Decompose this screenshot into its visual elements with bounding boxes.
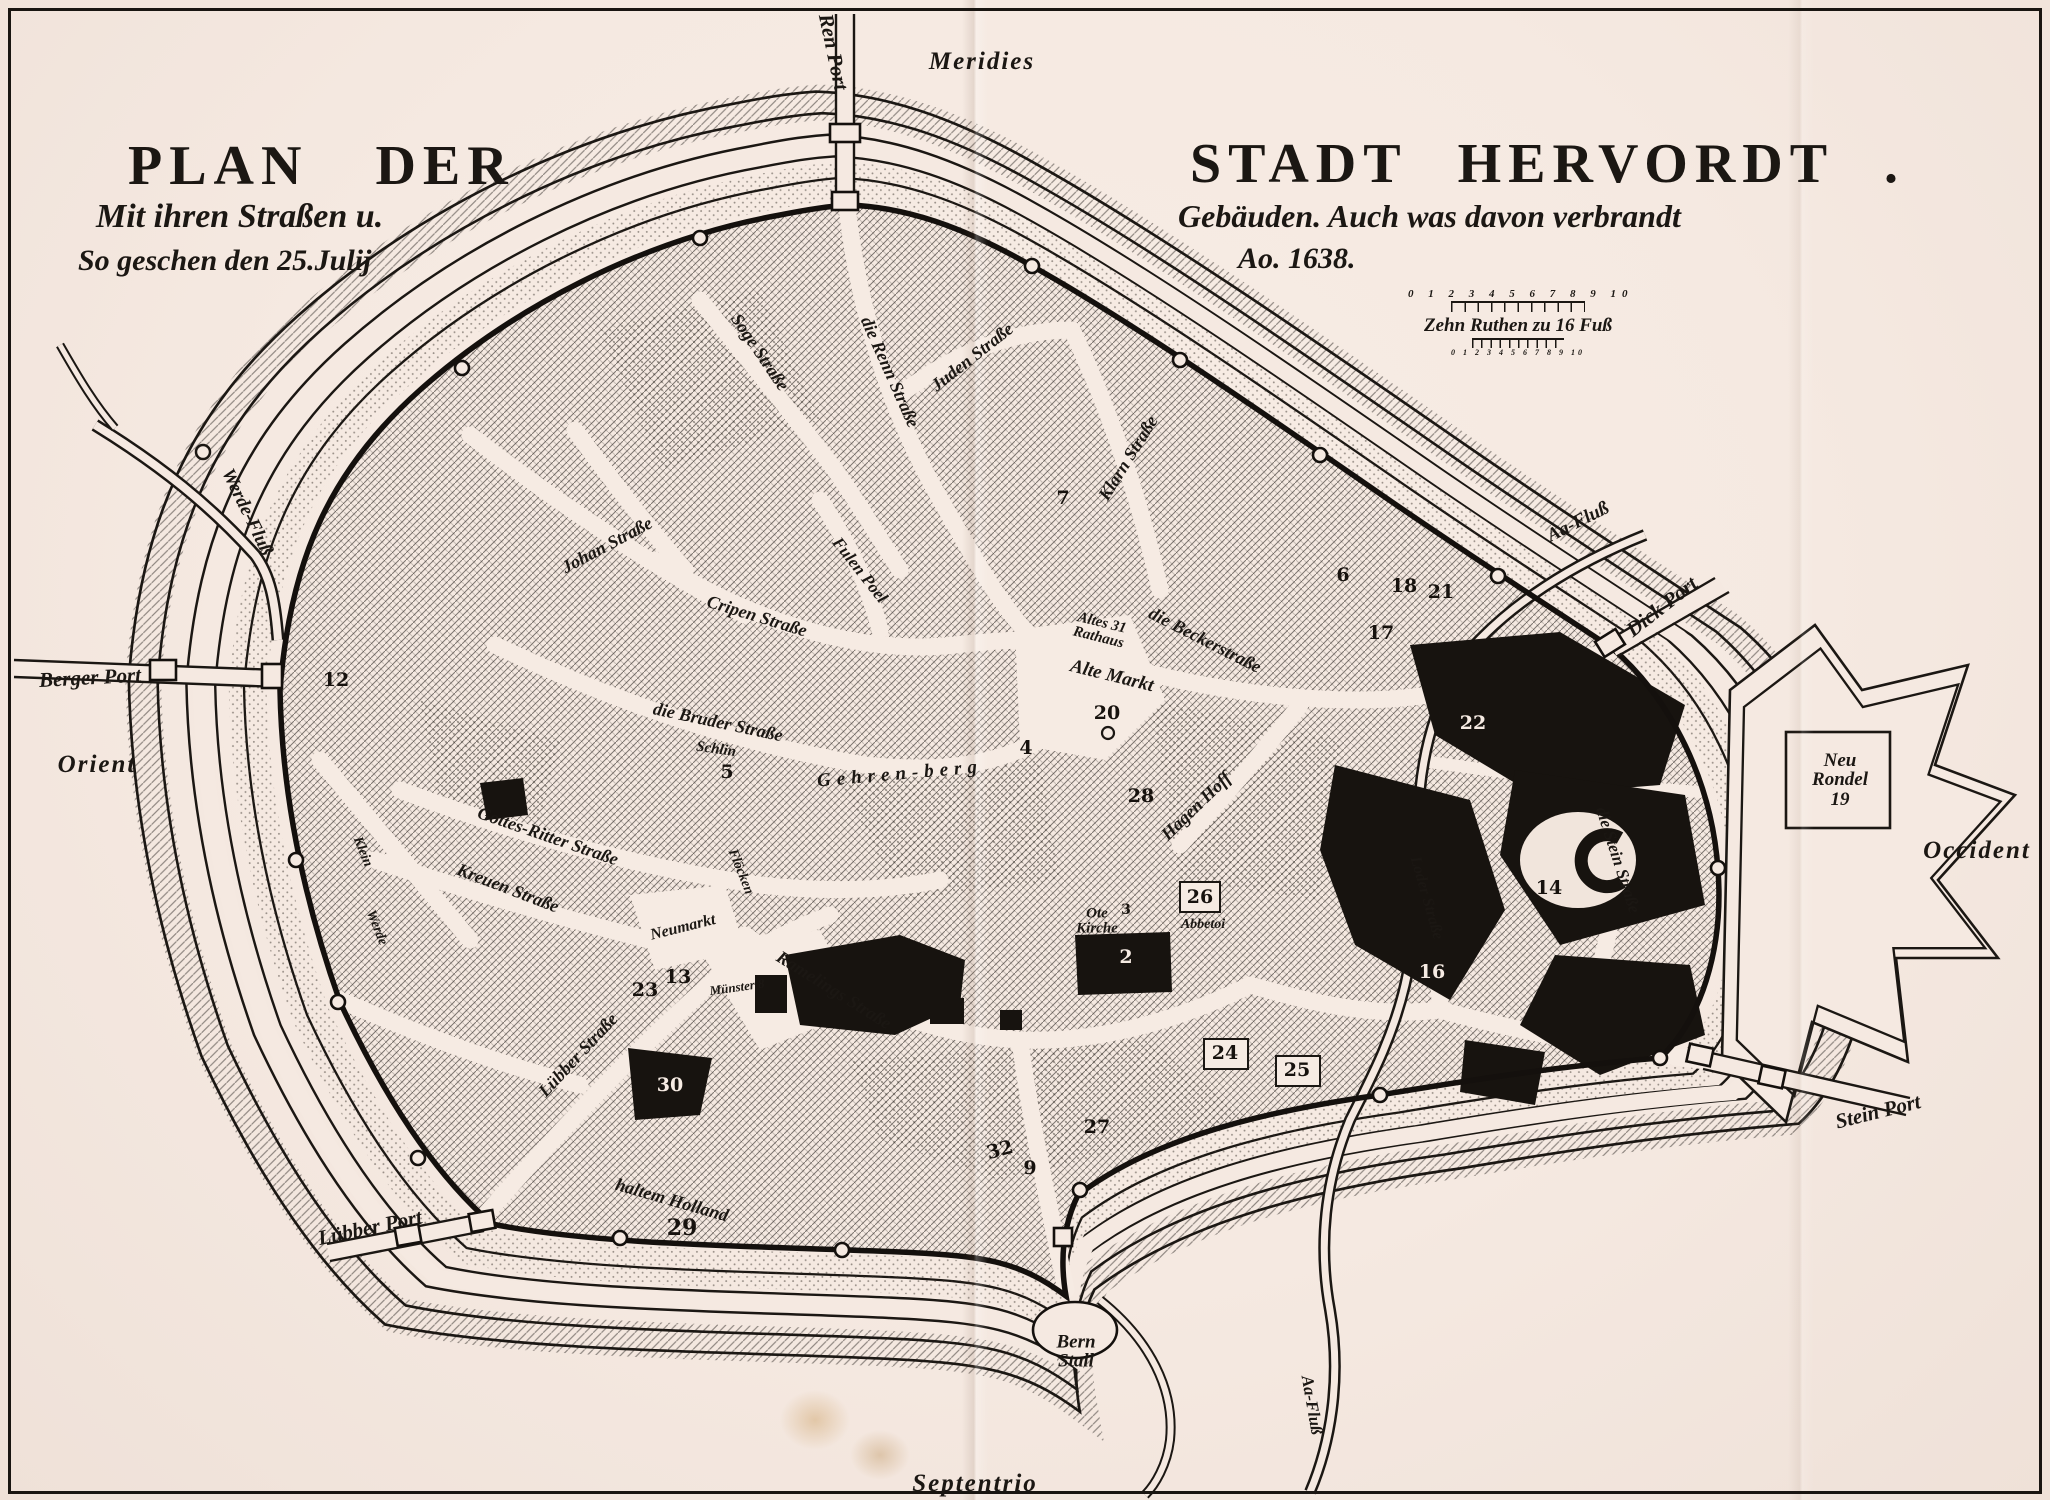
title-right-sub1: Gebäuden. Auch was davon verbrandt <box>1178 198 1681 235</box>
neu-rondel-label: Neu Rondel 19 <box>1812 751 1868 809</box>
map-number-13: 13 <box>665 966 691 988</box>
map-number-7: 7 <box>1056 487 1069 509</box>
map-number-9: 9 <box>1023 1157 1036 1179</box>
abbetoi-label: Abbetoi <box>1181 918 1225 932</box>
map-number-27: 27 <box>1084 1116 1110 1138</box>
scale-ruler-small <box>1472 338 1564 348</box>
gate-berger-port <box>262 664 282 688</box>
compass-orient: Orient <box>58 751 137 779</box>
gate-berger-outer <box>150 660 176 680</box>
map-number-22: 22 <box>1460 712 1486 734</box>
title-right-main: STADT HERVORDT . <box>1190 132 1905 196</box>
gate-luebber-port <box>469 1210 496 1232</box>
scale-ruler <box>1451 301 1585 312</box>
map-number-28: 28 <box>1128 785 1154 807</box>
title-left-sub1: Mit ihren Straßen u. <box>96 198 383 236</box>
map-number-14: 14 <box>1536 877 1562 899</box>
gate-south <box>1054 1228 1072 1246</box>
ote-kirche-label: Ote Kirche <box>1076 907 1118 938</box>
title-right-sub2: Ao. 1638. <box>1238 242 1356 276</box>
map-number-24: 24 <box>1212 1042 1238 1064</box>
map-number-6: 6 <box>1336 564 1349 586</box>
bern-stall-label: Bern Stall <box>1056 1333 1095 1372</box>
berger-port-label: Berger Port <box>38 665 141 692</box>
title-left-main: PLAN DER <box>128 134 515 198</box>
map-number-3: 3 <box>1121 902 1131 918</box>
map-number-30: 30 <box>657 1074 683 1096</box>
map-number-21: 21 <box>1428 581 1454 603</box>
map-number-2: 2 <box>1119 946 1132 968</box>
map-number-18: 18 <box>1391 575 1417 597</box>
compass-occident: Occident <box>1923 837 2031 865</box>
scale-bar: 0 1 2 3 4 5 6 7 8 9 10 Zehn Ruthen zu 16… <box>1408 288 1628 357</box>
map-number-5: 5 <box>720 761 733 783</box>
gate-stein-port <box>1686 1044 1713 1067</box>
gate-stein-outer <box>1758 1066 1785 1089</box>
gate-ren-outer <box>830 124 860 142</box>
map-number-17: 17 <box>1368 622 1394 644</box>
map-number-20: 20 <box>1094 702 1120 724</box>
map-number-26: 26 <box>1187 886 1213 908</box>
compass-meridies: Meridies <box>929 48 1035 76</box>
bastion-star <box>1722 625 2015 1122</box>
scale-numbers-bottom: 0 1 2 3 4 5 6 7 8 9 10 <box>1408 348 1628 357</box>
map-number-29: 29 <box>667 1215 698 1241</box>
scale-caption: Zehn Ruthen zu 16 Fuß <box>1408 315 1628 337</box>
title-left-sub2: So geschen den 25.Julij <box>78 244 371 278</box>
map-number-16: 16 <box>1419 961 1445 983</box>
map-scan: PLAN DER Mit ihren Straßen u. So geschen… <box>0 0 2050 1500</box>
map-number-4: 4 <box>1019 737 1032 759</box>
scale-numbers-top: 0 1 2 3 4 5 6 7 8 9 10 <box>1408 288 1628 300</box>
map-number-25: 25 <box>1284 1059 1310 1081</box>
gate-ren-port <box>832 192 858 210</box>
map-number-12: 12 <box>323 669 349 691</box>
compass-septentrio: Septentrio <box>912 1470 1038 1498</box>
map-number-23: 23 <box>632 979 658 1001</box>
